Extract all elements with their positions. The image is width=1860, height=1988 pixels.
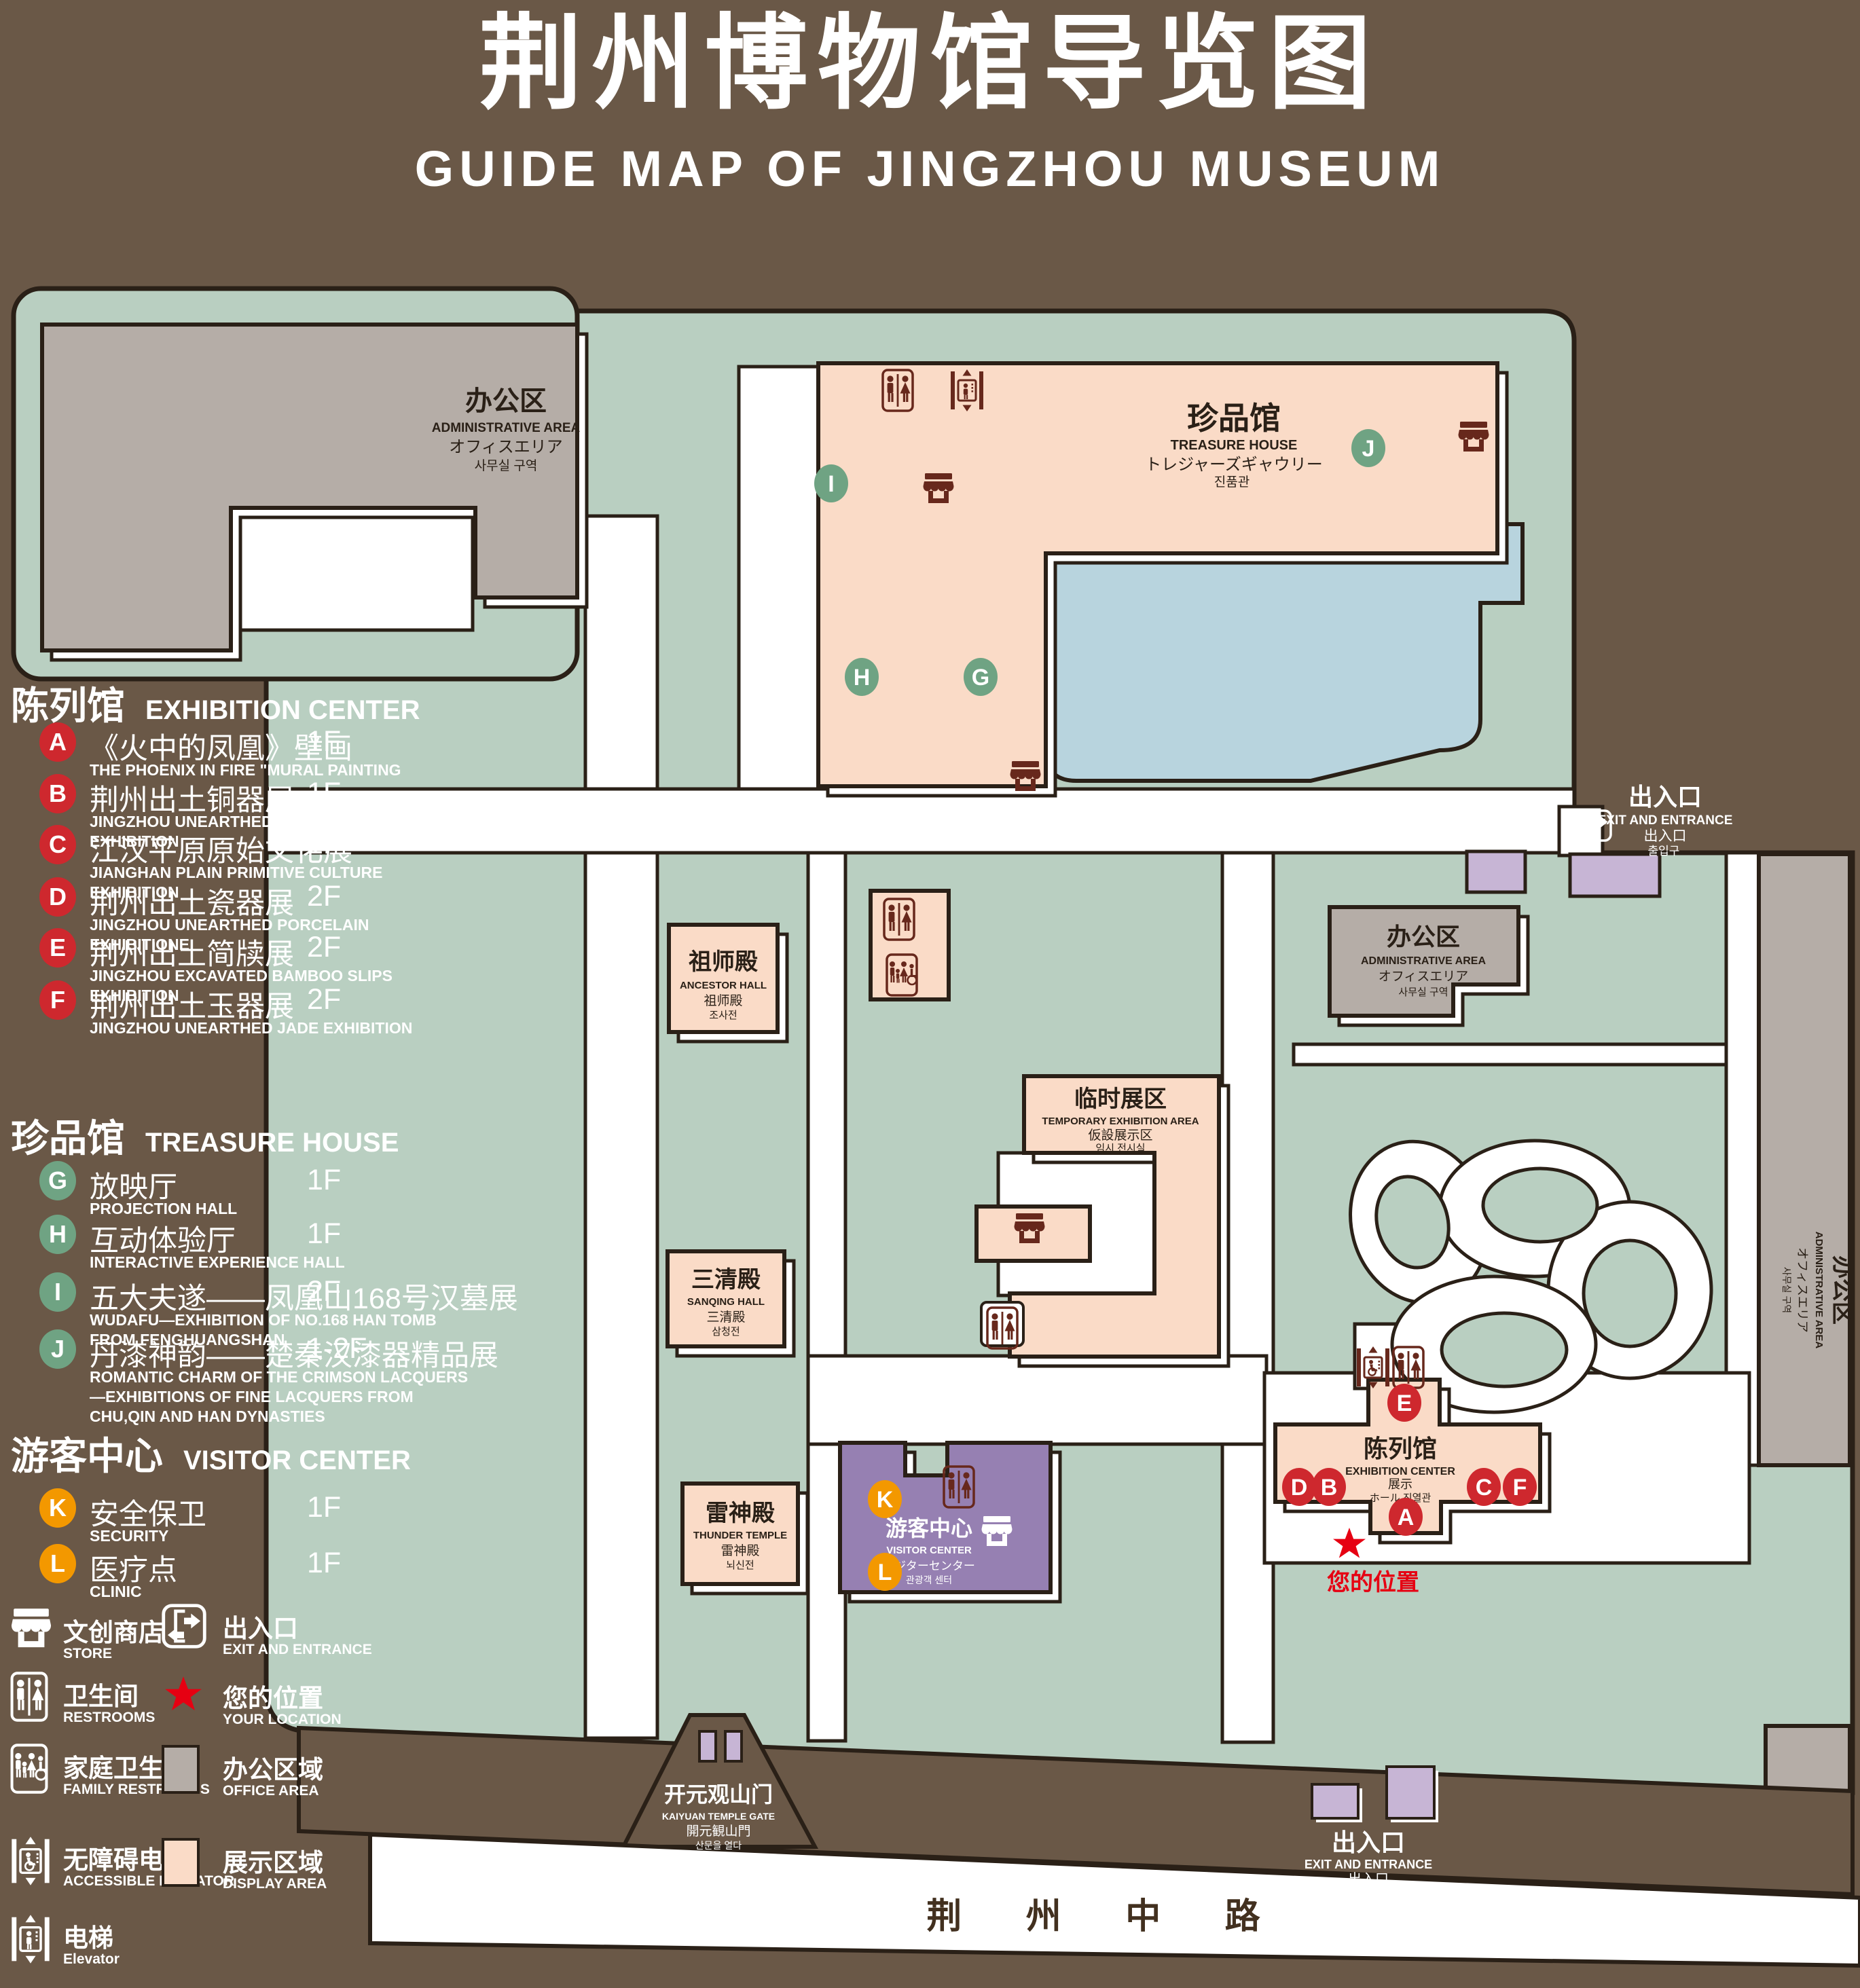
badge-E: E	[39, 928, 76, 968]
item-floor: 2F	[307, 1275, 341, 1308]
item-subtitle: PROJECTION HALL	[90, 1199, 470, 1219]
marker-D-letter: D	[1291, 1475, 1308, 1501]
building-restroom-block	[871, 891, 949, 999]
legend-label-en: STORE	[63, 1646, 112, 1662]
treasure-label-ja: トレジャーズギャウリー	[1145, 456, 1323, 474]
item-subtitle: SECURITY	[90, 1526, 470, 1546]
section-exhibition-center: 陈列馆EXHIBITION CENTER	[11, 676, 420, 731]
item-floor: 1F	[307, 1547, 341, 1580]
your-location-label: 您的位置	[1327, 1570, 1419, 1596]
item-floor: 1F	[307, 1164, 341, 1197]
small-building	[1312, 1784, 1358, 1818]
temporary-label-ja: 仮設展示区	[1088, 1128, 1152, 1143]
item-floor: 2F	[307, 931, 341, 964]
temporary-label-zh: 临时展区	[1074, 1086, 1167, 1112]
restroom-box	[981, 1302, 1023, 1348]
gate-label-en: KAIYUAN TEMPLE GATE	[662, 1811, 775, 1822]
exit-tr-zh2: 出入口	[1644, 828, 1687, 844]
admin-strip-label-ja: オフィスエリア	[1795, 1247, 1809, 1333]
location-star-icon	[164, 1676, 202, 1713]
visitor-label-ko: 관광객 센터	[906, 1575, 952, 1585]
item-subtitle: ROMANTIC CHARM OF THE CRIMSON LACQUERS—E…	[90, 1367, 470, 1426]
sanqing-label-zh: 三清殿	[691, 1267, 761, 1293]
admin-right-label-en: ADMINISTRATIVE AREA	[1361, 955, 1486, 967]
display-area-swatch	[162, 1838, 200, 1887]
legend-label-en: EXIT AND ENTRANCE	[223, 1642, 372, 1658]
legend-label-en: YOUR LOCATION	[223, 1712, 342, 1728]
building-thunder-temple: 雷神殿 THUNDER TEMPLE 雷神殿 뇌신전	[682, 1484, 807, 1594]
exit-br-zh2: 出入口	[1348, 1871, 1389, 1887]
admin-right-label-ko: 사무실 구역	[1398, 987, 1448, 998]
legend-label-zh: 您的位置	[223, 1678, 323, 1714]
sanqing-label-ja: 三清殿	[706, 1310, 745, 1325]
sanqing-label-en: SANQING HALL	[687, 1296, 765, 1308]
legend-label-en: DISPLAY AREA	[223, 1876, 327, 1892]
legend-panel: 陈列馆EXHIBITION CENTER A 《火中的凤凰》壁画 THE PHO…	[0, 0, 523, 1988]
exit-br-zh: 出入口	[1332, 1828, 1405, 1856]
item-subtitle: INTERACTIVE EXPERIENCE HALL	[90, 1253, 470, 1272]
badge-A: A	[39, 722, 76, 762]
small-building	[1467, 851, 1525, 892]
marker-K-letter: K	[877, 1487, 894, 1513]
item-floor: 1F	[307, 725, 341, 758]
legend-label-zh: 展示区域	[223, 1842, 323, 1879]
admin-right-label-zh: 办公区	[1387, 923, 1460, 951]
badge-L: L	[39, 1544, 76, 1583]
section-visitor-center: 游客中心VISITOR CENTER	[11, 1426, 411, 1481]
exhibition-label-zh: 陈列馆	[1364, 1435, 1437, 1462]
legend-label-zh: 卫生间	[63, 1676, 139, 1712]
thunder-label-zh: 雷神殿	[706, 1501, 775, 1526]
marker-I-letter: I	[828, 471, 834, 497]
section-title-en: TREASURE HOUSE	[145, 1128, 399, 1158]
legend-label-en: Elevator	[63, 1951, 120, 1968]
marker-E-letter: E	[1397, 1391, 1412, 1416]
item-floor: 2F	[307, 983, 341, 1016]
item-subtitle: CLINIC	[90, 1582, 470, 1602]
legend-label-en: ACCESSIBLE ELEVATOR	[63, 1873, 234, 1890]
marker-L-letter: L	[878, 1560, 892, 1585]
item-floor: 1F	[307, 1217, 341, 1251]
thunder-label-en: THUNDER TEMPLE	[693, 1530, 787, 1541]
restroom-icon	[10, 1672, 48, 1722]
building-sanqing-hall: 三清殿 SANQING HALL 三清殿 삼청전	[668, 1251, 794, 1356]
treasure-label-ko: 진품관	[1214, 475, 1250, 490]
temporary-label-ko: 임시 전시실	[1095, 1143, 1145, 1154]
item-floor: 1F	[307, 1491, 341, 1524]
admin-strip-label-zh: 办公区	[1829, 1255, 1855, 1325]
exit-tr-ko: 출입구	[1648, 845, 1680, 858]
elevator-icon	[10, 1913, 51, 1965]
legend-label-zh: 办公区域	[223, 1749, 323, 1786]
gate-label-ko: 산문을 열다	[695, 1840, 742, 1851]
ancestor-label-zh: 祖师殿	[689, 949, 758, 975]
badge-G: G	[39, 1161, 76, 1200]
exit-icon	[162, 1604, 206, 1649]
badge-K: K	[39, 1488, 76, 1528]
exit-tr-en: EXIT AND ENTRANCE	[1598, 813, 1733, 828]
section-title-zh: 游客中心	[11, 1435, 163, 1477]
small-building	[1387, 1767, 1434, 1818]
gate-pillar	[699, 1731, 716, 1761]
marker-G-letter: G	[972, 665, 989, 691]
admin-strip-label-en: ADMINISTRATIVE AREA	[1813, 1232, 1825, 1349]
visitor-label-en: VISITOR CENTER	[886, 1545, 972, 1556]
badge-H: H	[39, 1215, 76, 1254]
legend-label-zh: 文创商店	[63, 1612, 164, 1649]
building-store-block	[977, 1207, 1090, 1261]
small-building	[1570, 854, 1660, 896]
section-title-zh: 珍品馆	[11, 1117, 125, 1160]
item-floor: 1F	[307, 777, 341, 810]
exit-tr-zh: 出入口	[1628, 783, 1702, 811]
store-icon	[10, 1608, 52, 1650]
badge-I: I	[39, 1272, 76, 1312]
badge-J: J	[39, 1329, 76, 1369]
building-visitor-center: 游客中心 VISITOR CENTER ビジターセンター 관광객 센터 K L	[840, 1443, 1060, 1602]
marker-A-letter: A	[1398, 1505, 1415, 1530]
sanqing-label-ko: 삼청전	[712, 1326, 740, 1338]
section-title-en: EXHIBITION CENTER	[145, 695, 420, 725]
ancestor-label-ja: 祖师殿	[704, 993, 742, 1008]
legend-label-en: RESTROOMS	[63, 1710, 155, 1726]
item-floor: 1-2F	[307, 1332, 367, 1365]
section-treasure-house: 珍品馆TREASURE HOUSE	[11, 1108, 399, 1163]
office-area-swatch	[162, 1745, 200, 1794]
section-title-en: VISITOR CENTER	[183, 1446, 411, 1475]
admin-strip-label-ko: 사무실 구역	[1781, 1267, 1792, 1313]
temporary-label-en: TEMPORARY EXHIBITION AREA	[1042, 1116, 1199, 1127]
marker-F-letter: F	[1513, 1475, 1527, 1501]
treasure-label-zh: 珍品馆	[1187, 401, 1281, 436]
thunder-label-ko: 뇌신전	[726, 1560, 754, 1571]
item-subtitle: JINGZHOU UNEARTHED JADE EXHIBITION	[90, 1018, 470, 1038]
item-floor: 1F	[307, 828, 341, 861]
marker-H-letter: H	[854, 665, 871, 691]
marker-C-letter: C	[1476, 1475, 1493, 1501]
marker-B-letter: B	[1321, 1475, 1338, 1501]
badge-C: C	[39, 825, 76, 864]
marker-J-letter: J	[1362, 436, 1375, 462]
badge-F: F	[39, 980, 76, 1020]
badge-B: B	[39, 774, 76, 813]
legend-label-zh: 出入口	[223, 1608, 298, 1644]
ancestor-label-en: ANCESTOR HALL	[680, 980, 767, 991]
ancestor-label-ko: 조사전	[709, 1010, 737, 1021]
legend-label-en: OFFICE AREA	[223, 1783, 319, 1799]
accessible-elevator-icon	[10, 1835, 51, 1887]
visitor-label-zh: 游客中心	[886, 1516, 972, 1541]
gate-pillar	[725, 1731, 742, 1761]
thunder-label-ja: 雷神殿	[721, 1543, 759, 1558]
exhibition-label-en: EXHIBITION CENTER	[1345, 1466, 1455, 1477]
family-restroom-icon	[10, 1744, 48, 1794]
item-floor: 2F	[307, 880, 341, 913]
treasure-label-en: TREASURE HOUSE	[1171, 438, 1298, 453]
exhibition-label-ja: 展示	[1388, 1477, 1412, 1491]
legend-label-zh: 电梯	[63, 1917, 113, 1954]
building-ancestor-hall: 祖师殿 ANCESTOR HALL 祖师殿 조사전	[669, 925, 787, 1042]
street-name: 荆 州 中 路	[926, 1897, 1287, 1936]
exit-br-en: EXIT AND ENTRANCE	[1305, 1858, 1432, 1871]
section-title-zh: 陈列馆	[11, 684, 125, 727]
admin-right-label-ja: オフィスエリア	[1379, 970, 1469, 984]
gate-label-zh: 开元观山门	[664, 1782, 773, 1807]
gate-label-ja: 開元観山門	[686, 1824, 750, 1839]
badge-D: D	[39, 877, 76, 917]
exit-br-ko: 출입구	[1352, 1887, 1382, 1899]
